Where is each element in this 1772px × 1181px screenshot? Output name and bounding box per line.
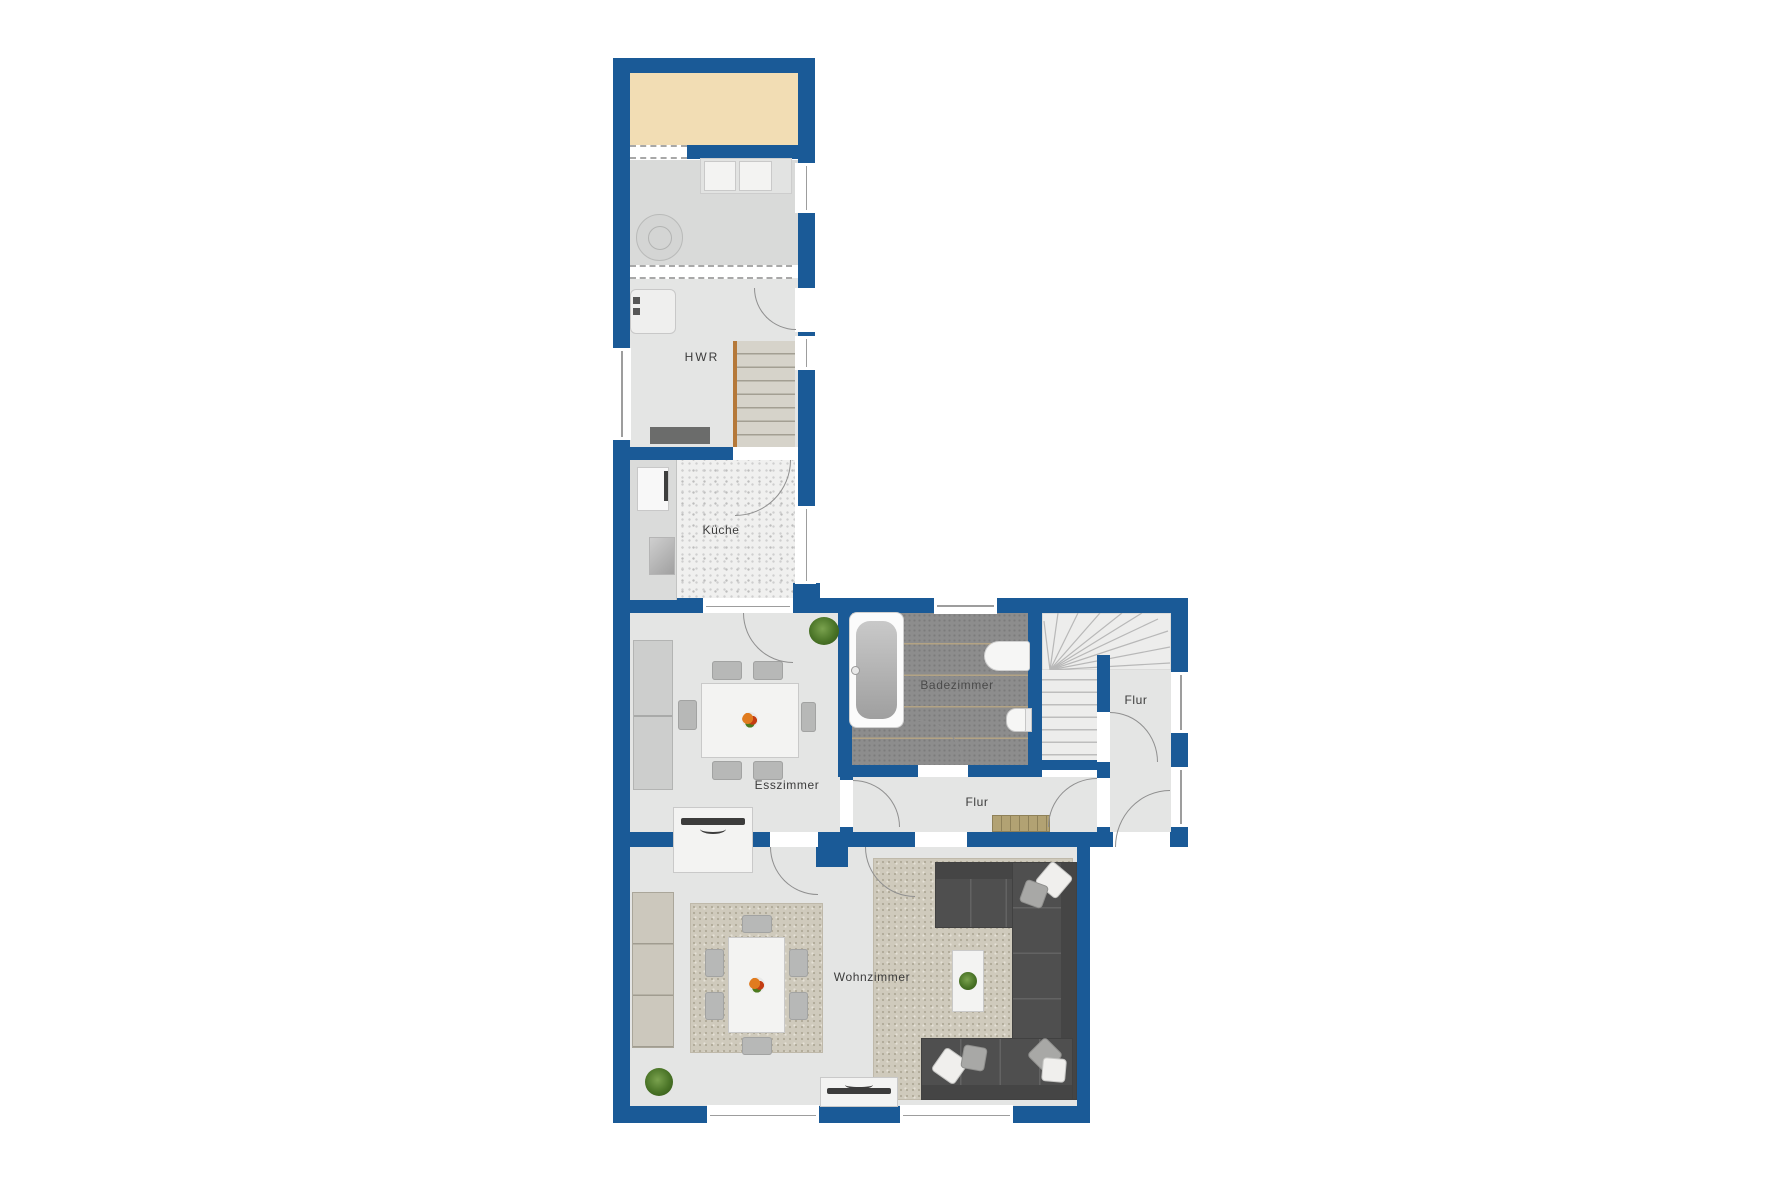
wall: [1097, 655, 1110, 715]
room-label-flur-upper: Flur: [1124, 693, 1147, 707]
winder-stairs-run: [1042, 668, 1097, 762]
wall: [613, 1106, 1090, 1123]
terrace-floor: [630, 73, 798, 146]
door-opening: [915, 832, 967, 847]
chair: [742, 1037, 772, 1055]
door-opening: [770, 832, 818, 847]
wall: [1037, 760, 1097, 770]
appliance: [704, 161, 736, 191]
chair: [705, 949, 724, 977]
pillow: [960, 1044, 988, 1072]
window: [795, 163, 816, 213]
sideboard: [633, 640, 673, 790]
kitchen-passage: [703, 598, 793, 613]
shelf-unit: [632, 892, 674, 1048]
wall: [1028, 613, 1042, 777]
tv-stand: [845, 1081, 873, 1089]
door-opening: [733, 447, 793, 460]
window: [1171, 767, 1189, 827]
wall: [613, 447, 733, 460]
window: [1171, 672, 1189, 733]
corner-plant: [645, 1068, 673, 1096]
chair: [789, 992, 808, 1020]
chair: [712, 761, 742, 780]
wall: [815, 598, 1188, 613]
tv-stand: [700, 824, 726, 834]
bathroom-sink: [984, 641, 1030, 671]
straight-stairs: [733, 341, 795, 447]
washing-machine-knob: [633, 308, 640, 315]
appliance: [739, 161, 772, 191]
chair: [678, 700, 697, 730]
chair: [705, 992, 724, 1020]
window: [795, 506, 816, 584]
pillow: [1041, 1057, 1067, 1083]
bench: [992, 815, 1050, 832]
door-opening: [795, 288, 816, 332]
window: [900, 1105, 1013, 1124]
boiler-inner: [648, 226, 672, 250]
terrace-opening: [630, 145, 687, 159]
washing-machine-knob: [633, 297, 640, 304]
chair: [801, 702, 816, 732]
coffee-table-plant: [959, 972, 977, 990]
chair: [712, 661, 742, 680]
room-label-kueche: Küche: [702, 523, 739, 537]
partition-opening: [630, 265, 792, 279]
wall: [613, 598, 703, 613]
room-label-flur-lower: Flur: [965, 795, 988, 809]
plant: [809, 617, 839, 645]
room-label-esszimmer: Esszimmer: [755, 778, 820, 792]
toilet-bowl: [1006, 708, 1026, 732]
room-label-hwr: HWR: [685, 350, 720, 364]
wall: [613, 58, 630, 1123]
door-opening: [1097, 778, 1110, 827]
bathtub-basin: [856, 621, 897, 719]
chair: [742, 915, 772, 933]
window: [795, 336, 816, 370]
fruit-bowl: [749, 977, 765, 993]
door-opening: [918, 765, 968, 777]
window: [611, 348, 631, 440]
chair: [753, 661, 783, 680]
fruit-bowl: [742, 712, 758, 728]
bathtub-faucet: [851, 666, 860, 675]
kitchen-cooktop: [664, 471, 668, 501]
room-label-badezimmer: Badezimmer: [920, 678, 993, 692]
door-opening: [1097, 712, 1110, 762]
bathroom-window: [934, 596, 997, 614]
window: [707, 1105, 819, 1124]
wall: [816, 847, 848, 867]
tv-cabinet: [673, 807, 753, 873]
wall: [1077, 847, 1090, 1123]
door-opening: [840, 780, 853, 827]
kitchen-appliance: [649, 537, 675, 575]
chair: [789, 949, 808, 977]
wall: [613, 58, 815, 73]
room-label-wohnzimmer: Wohnzimmer: [834, 970, 910, 984]
floorplan-canvas: HWR Küche Esszimmer Badezimmer Flur Flur…: [0, 0, 1772, 1181]
dresser: [650, 427, 710, 444]
